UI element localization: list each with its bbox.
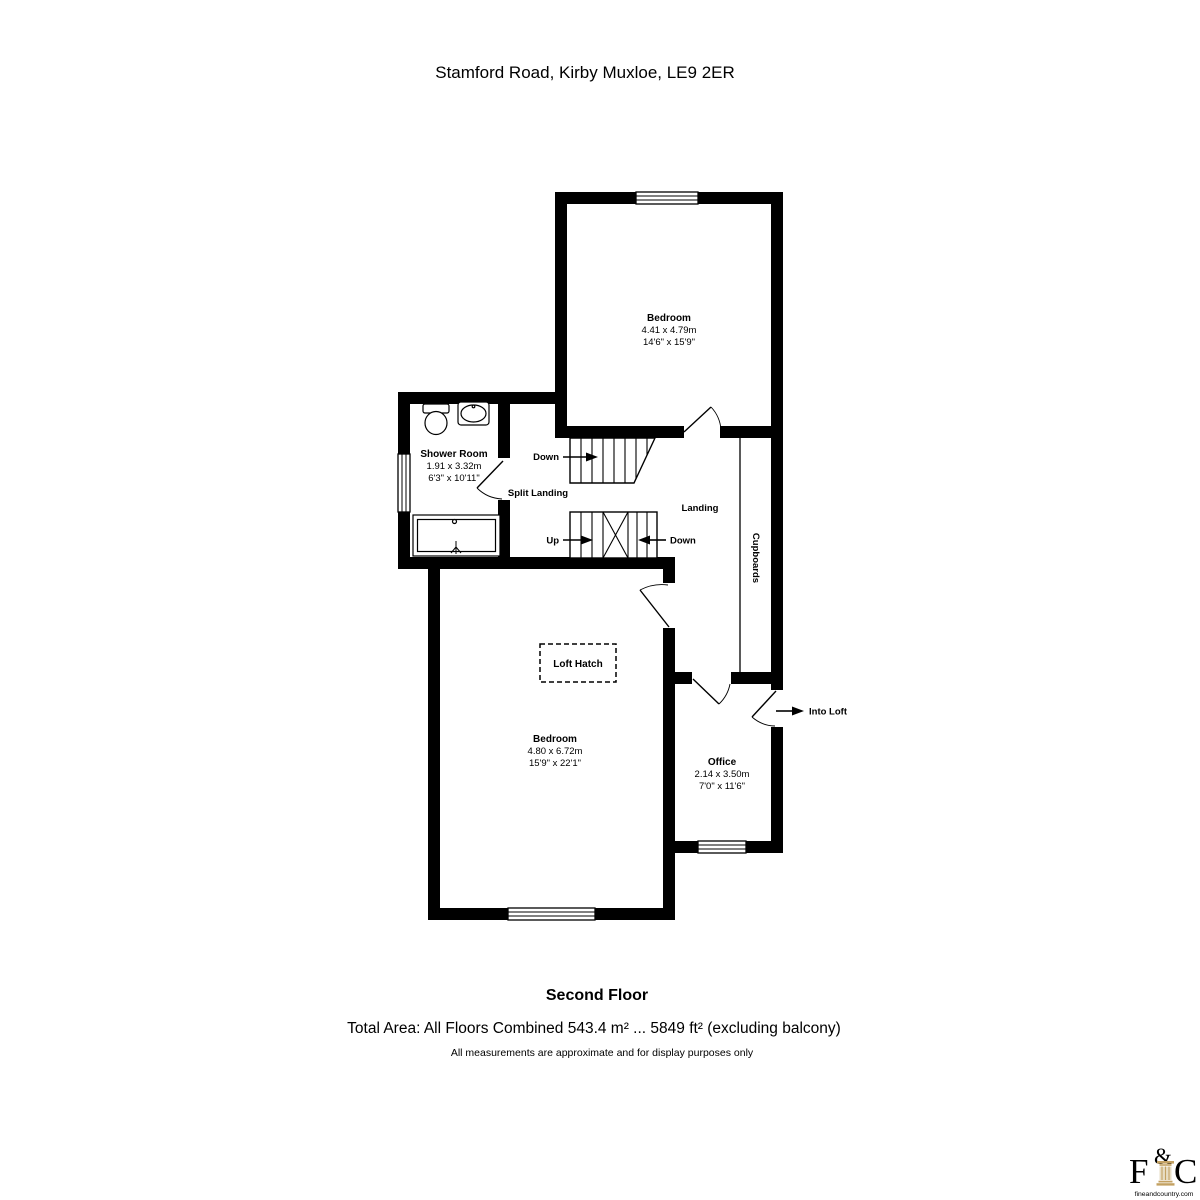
room-name: Bedroom — [533, 734, 577, 745]
logo-letter-f: F — [1129, 1152, 1148, 1191]
door-bedroom-main — [640, 585, 669, 627]
down-label: Down — [533, 452, 559, 463]
up-label: Up — [546, 536, 559, 547]
room-metric: 2.14 x 3.50m — [695, 769, 750, 780]
floor-plan-canvas: Stamford Road, Kirby Muxloe, LE9 2ER — [0, 0, 1200, 1200]
room-metric: 4.80 x 6.72m — [528, 746, 583, 757]
window-shower-room — [398, 454, 410, 512]
total-area-text: Total Area: All Floors Combined 543.4 m²… — [347, 1020, 841, 1037]
door-bedroom-top — [684, 407, 721, 432]
wall — [746, 841, 783, 853]
room-imperial: 6'3" x 10'11" — [428, 473, 479, 484]
loft-hatch-label: Loft Hatch — [553, 659, 602, 670]
wall — [663, 628, 675, 920]
sink-icon — [458, 402, 489, 425]
wall — [428, 908, 508, 920]
room-label-bedroom-main: Bedroom 4.80 x 6.72m 15'9" x 22'1" — [528, 734, 583, 769]
room-label-bedroom-top: Bedroom 4.41 x 4.79m 14'6" x 15'9" — [642, 313, 697, 348]
room-name: Shower Room — [420, 449, 487, 460]
page-title: Stamford Road, Kirby Muxloe, LE9 2ER — [435, 63, 735, 82]
into-loft-label: Into Loft — [809, 707, 848, 718]
room-name: Bedroom — [647, 313, 691, 324]
staircase-down-top — [570, 438, 655, 483]
brand-logo: F & C fineandcountry.com — [1129, 1144, 1197, 1198]
wall — [663, 841, 698, 853]
down-label: Down — [670, 536, 696, 547]
room-name: Office — [708, 757, 737, 768]
landing-label: Landing — [682, 503, 719, 514]
wall — [498, 392, 510, 458]
room-imperial: 15'9" x 22'1" — [529, 758, 581, 769]
wall — [731, 672, 783, 684]
logo-letter-c: C — [1174, 1152, 1197, 1191]
wall — [720, 426, 783, 438]
right-arrow-icon — [792, 707, 804, 716]
wall — [771, 192, 783, 690]
room-label-office: Office 2.14 x 3.50m 7'0" x 11'6" — [695, 757, 750, 792]
door-into-loft — [752, 691, 776, 726]
window-bedroom-top — [636, 192, 698, 204]
floor-name: Second Floor — [546, 987, 648, 1004]
wall — [771, 727, 783, 853]
wall — [555, 426, 684, 438]
room-imperial: 14'6" x 15'9" — [643, 337, 695, 348]
floorplan-page: Stamford Road, Kirby Muxloe, LE9 2ER — [0, 0, 1200, 1200]
window-bedroom-main — [508, 908, 595, 920]
room-label-shower-room: Shower Room 1.91 x 3.32m 6'3" x 10'11" — [420, 449, 487, 484]
room-metric: 4.41 x 4.79m — [642, 325, 697, 336]
staircase-up-down — [570, 512, 657, 558]
disclaimer-text: All measurements are approximate and for… — [451, 1047, 754, 1059]
toilet-icon — [423, 404, 449, 435]
split-landing-label: Split Landing — [508, 488, 568, 499]
logo-website: fineandcountry.com — [1135, 1191, 1194, 1198]
door-office — [693, 679, 730, 704]
into-loft-annotation: Into Loft — [776, 707, 848, 718]
wall — [663, 557, 675, 583]
wall — [428, 557, 440, 920]
room-imperial: 7'0" x 11'6" — [699, 781, 745, 792]
wall — [398, 392, 410, 454]
cupboards-label: Cupboards — [750, 533, 761, 583]
shower-tray-icon — [413, 515, 500, 556]
window-office — [698, 841, 746, 853]
room-metric: 1.91 x 3.32m — [427, 461, 482, 472]
wall — [663, 672, 692, 684]
